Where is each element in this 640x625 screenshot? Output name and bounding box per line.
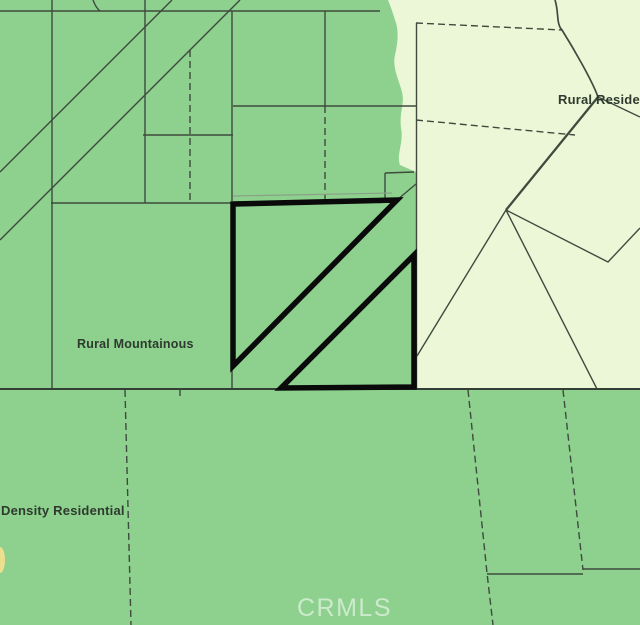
zone-label-density-residential: Density Residential	[1, 504, 125, 518]
crmls-watermark: CRMLS	[297, 594, 392, 623]
highlighted-parcel-outline	[233, 200, 414, 388]
zoning-parcel-map: Rural Mountainous Rural Residen Density …	[0, 0, 640, 625]
parcel-lines-green-zone	[0, 0, 417, 389]
highlighted-parcel-lower-triangle	[281, 255, 414, 388]
poi-marker	[0, 547, 5, 573]
zone-label-rural-residential: Rural Residen	[558, 93, 640, 107]
parcel-map-canvas	[0, 0, 640, 625]
highlighted-parcel-upper-triangle	[233, 200, 397, 366]
zone-label-rural-mountainous: Rural Mountainous	[77, 337, 194, 351]
zone-rural-residential-area	[388, 0, 640, 389]
